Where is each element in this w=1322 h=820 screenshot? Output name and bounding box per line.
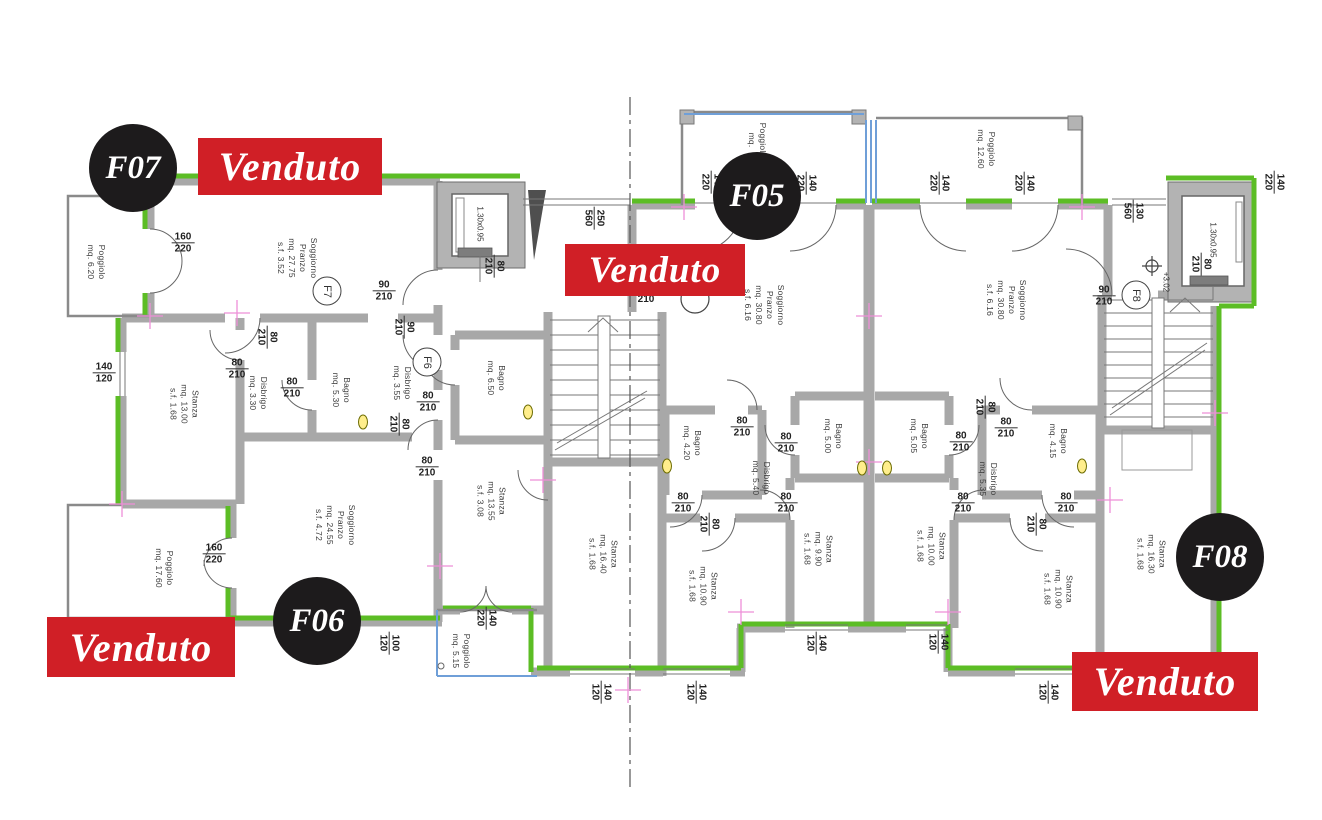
unit-tag-f8: F8	[1122, 281, 1151, 310]
dimension-label: 80210	[482, 255, 505, 278]
sold-banner-f05: Venduto	[565, 244, 745, 296]
room-label: Stanzamq. 10.90s.f. 1.68	[686, 566, 719, 606]
dimension-label: 100120	[377, 632, 400, 655]
dimension-label: 80210	[226, 357, 249, 380]
stairs-right	[1104, 298, 1213, 470]
unit-tag-f6: F6	[413, 348, 442, 377]
dimension-label: 140120	[1036, 681, 1059, 704]
sold-banner-f06: Venduto	[47, 617, 235, 677]
room-label: Stanzamq. 16.40s.f. 1.68	[586, 534, 619, 574]
room-label: Disbrigomq. 5.35	[977, 462, 999, 497]
dimension-label: 80210	[1055, 491, 1078, 514]
room-label: Poggiolomq. 5.15	[450, 634, 472, 669]
floor-plan: Poggiolomq. 6.20 SoggiornoPranzomq. 27.7…	[0, 0, 1322, 820]
dimension-label: 130560	[1121, 200, 1144, 223]
room-label: Bagnomq. 5.05	[908, 419, 930, 454]
room-label: Bagnomq. 4.15	[1047, 424, 1069, 459]
sold-banner-f07: Venduto	[198, 138, 382, 195]
dimension-label: 90210	[392, 316, 415, 339]
dimension-label: 90210	[1093, 284, 1116, 307]
dimension-label: 140120	[93, 361, 116, 384]
room-label: SoggiornoPranzomq. 30.80s.f. 6.16	[742, 285, 786, 326]
dimension-label: 160220	[203, 542, 226, 565]
dimension-label: 160220	[172, 231, 195, 254]
room-label: Disbrigomq. 3.55	[391, 366, 413, 401]
dimension-label: 80210	[995, 416, 1018, 439]
stairs-center	[550, 316, 660, 458]
dimension-label: 80210	[255, 326, 278, 349]
room-label: Bagnomq. 4.20	[681, 426, 703, 461]
dimension-label: 90210	[373, 279, 396, 302]
unit-badge-f07[interactable]: F07	[89, 124, 177, 212]
room-label: Stanzamq. 10.00s.f. 1.68	[914, 526, 947, 566]
room-label: SoggiornoPranzomq. 27.75s.f. 3.52	[275, 238, 319, 279]
room-label: Stanzamq. 10.90s.f. 1.68	[1041, 569, 1074, 609]
dimension-label: 80210	[1024, 513, 1047, 536]
dimension-label: 80210	[417, 390, 440, 413]
room-label: Bagnomq. 5.30	[330, 373, 352, 408]
room-label: Stanzamq. 13.00s.f. 1.68	[167, 384, 200, 424]
dimension-label: 140120	[926, 631, 949, 654]
unit-badge-f08[interactable]: F08	[1176, 513, 1264, 601]
dimension-label: 80210	[973, 396, 996, 419]
dimension-label: 250560	[582, 207, 605, 230]
room-label: Stanzamq. 13.55s.f. 3.08	[474, 481, 507, 521]
dimension-label: 80210	[731, 415, 754, 438]
dimension-label: 80210	[950, 430, 973, 453]
dimension-label: 140120	[589, 681, 612, 704]
dimension-label: 80210	[775, 431, 798, 454]
room-label: Poggiolomq. 12.60	[975, 129, 997, 169]
dimension-label: 80210	[1189, 253, 1212, 276]
room-label: Poggiolomq. 6.20	[85, 245, 107, 280]
room-label: Stanzamq. 9.90s.f. 1.68	[801, 532, 834, 567]
dimension-label: 80210	[952, 491, 975, 514]
dimension-label: 80210	[697, 513, 720, 536]
unit-badge-f06[interactable]: F06	[273, 577, 361, 665]
room-label: Stanzamq. 16.30s.f. 1.68	[1134, 534, 1167, 574]
unit-badge-f05[interactable]: F05	[713, 152, 801, 240]
dimension-label: 80210	[672, 491, 695, 514]
dimension-label: 140220	[1012, 172, 1035, 195]
room-label: Poggiolomq. 17.60	[153, 548, 175, 588]
dimension-label: 140120	[804, 632, 827, 655]
room-label: SoggiornoPranzomq. 30.80s.f. 6.16	[984, 280, 1028, 321]
room-label: Disbrigomq. 3.30	[247, 376, 269, 411]
room-label: SoggiornoPranzomq. 24.55s.f. 4.72	[313, 505, 357, 546]
room-label: Bagnomq. 5.00	[822, 419, 844, 454]
room-label: Bagnomq. 6.50	[485, 361, 507, 396]
dimension-label: 80210	[775, 491, 798, 514]
dimension-label: 140220	[1262, 171, 1285, 194]
dimension-label: 80210	[281, 376, 304, 399]
room-label: Disbrigomq. 5.40	[750, 461, 772, 496]
dimension-label: 140220	[474, 607, 497, 630]
elevation-label: +3.02	[1162, 272, 1171, 292]
sold-banner-f08: Venduto	[1072, 652, 1258, 711]
dimension-label: 80210	[416, 455, 439, 478]
elevator-size-label: 1.30x0.95	[476, 206, 485, 241]
dimension-label: 140120	[684, 681, 707, 704]
dimension-label: 80210	[387, 413, 410, 436]
unit-tag-f7: F7	[313, 277, 342, 306]
dimension-label: 140220	[927, 172, 950, 195]
